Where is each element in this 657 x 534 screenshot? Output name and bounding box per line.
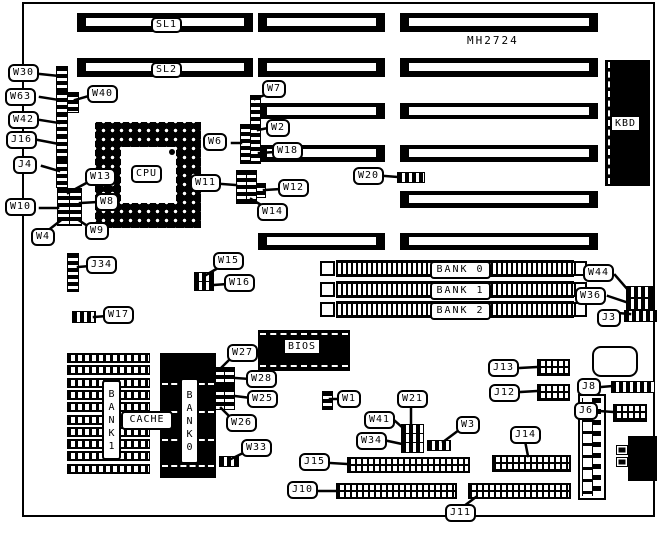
leader-j8 [601,386,613,387]
simm-bank-label-0: BANK 0 [430,261,491,279]
callout-w28: W28 [246,370,277,388]
leader-j4 [42,166,59,171]
leader-j16 [38,140,59,144]
callout-j13: J13 [488,359,519,377]
callout-w63: W63 [5,88,36,106]
callout-w4: W4 [31,228,55,246]
cpu-label: CPU [131,165,162,183]
callout-w18: W18 [272,142,303,160]
kbd-label: KBD [611,116,640,131]
callout-w17: W17 [103,306,134,324]
callout-w21: W21 [397,390,428,408]
callout-w16: W16 [224,274,255,292]
callout-w25: W25 [247,390,278,408]
leader-w36 [608,296,626,302]
callout-w20: W20 [353,167,384,185]
callout-w12: W12 [278,179,309,197]
callout-w2: W2 [266,119,290,137]
callout-w10: W10 [5,198,36,216]
callout-w42: W42 [8,111,39,129]
leader-j6 [599,411,614,412]
callout-w9: W9 [85,222,109,240]
slot-label-sl2: SL2 [151,62,182,78]
callout-w36: W36 [575,287,606,305]
callout-j11: J11 [445,504,476,522]
simm-bank-label-1: BANK 1 [430,282,491,300]
callout-j8: J8 [577,378,601,396]
leader-w63 [40,97,59,100]
leader-w44 [615,275,628,290]
leader-w34 [388,441,402,444]
leader-w42 [40,120,59,123]
callout-w6: W6 [203,133,227,151]
callout-w26: W26 [226,414,257,432]
leader-w41 [394,420,403,428]
callout-w30: W30 [8,64,39,82]
leader-j12 [520,391,538,392]
callout-j14: J14 [510,426,541,444]
simm-bank-label-2: BANK 2 [430,302,491,320]
leader-w11 [222,184,236,185]
callout-w7: W7 [262,80,286,98]
callout-w33: W33 [241,439,272,457]
cache-label: CACHE [121,411,173,430]
leader-w30 [40,74,59,76]
leader-j15 [330,463,348,464]
callout-j3: J3 [597,309,621,327]
callout-w8: W8 [95,193,119,211]
callout-w14: W14 [257,203,288,221]
callout-w34: W34 [356,432,387,450]
bios-label: BIOS [284,339,320,354]
leader-j13 [519,367,538,368]
callout-w15: W15 [213,252,244,270]
motherboard-diagram: MH2724 CPU BIOS KBD BANK1 BANK0 CACHE SL… [0,0,657,534]
callout-j15: J15 [299,453,330,471]
callout-w1: W1 [337,390,361,408]
callout-j4: J4 [13,156,37,174]
callout-w40: W40 [87,85,118,103]
callout-j34: J34 [86,256,117,274]
callout-j12: J12 [489,384,520,402]
leader-w20 [385,176,398,177]
callout-w3: W3 [456,416,480,434]
callout-w27: W27 [227,344,258,362]
callout-j6: J6 [574,402,598,420]
slot-label-sl1: SL1 [151,17,182,33]
callout-j10: J10 [287,481,318,499]
callout-j16: J16 [6,131,37,149]
callout-w44: W44 [583,264,614,282]
callout-w11: W11 [190,174,221,192]
bank0-vertical-label: BANK0 [180,378,199,464]
callout-w41: W41 [364,411,395,429]
callout-w13: W13 [85,168,116,186]
bank1-vertical-label: BANK1 [102,380,121,460]
